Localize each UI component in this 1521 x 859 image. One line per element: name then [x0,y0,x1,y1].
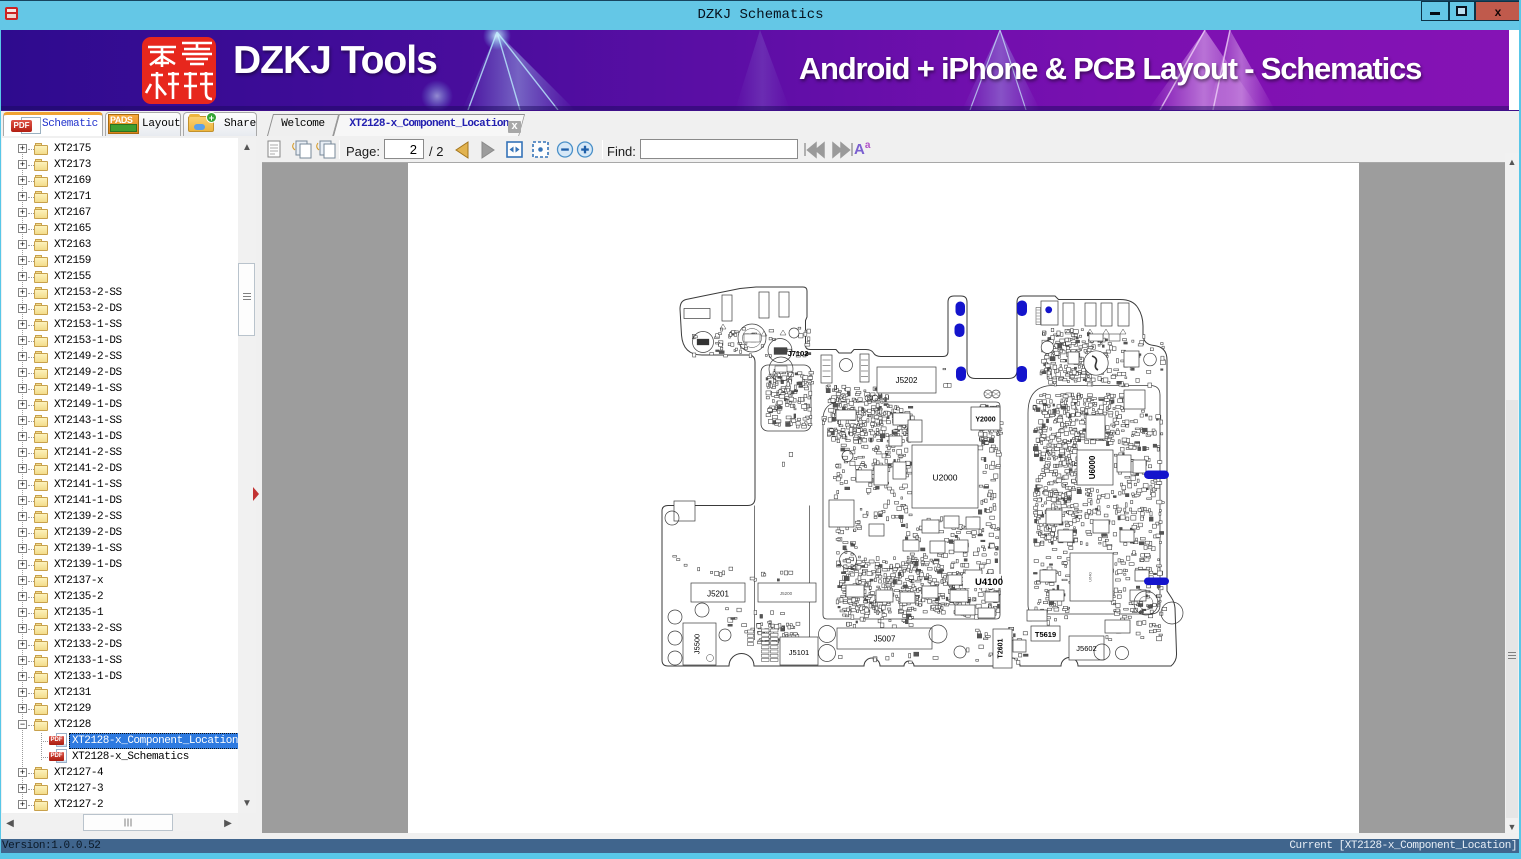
svg-text:T5619: T5619 [1035,630,1056,639]
svg-text:T2601: T2601 [998,638,1005,658]
svg-text:J5101: J5101 [789,648,809,657]
svg-text:J5202: J5202 [896,376,918,385]
svg-text:J7102: J7102 [788,349,809,358]
svg-text:U4100: U4100 [975,577,1003,588]
svg-text:U2000: U2000 [932,473,957,483]
svg-text:J5200: J5200 [780,591,793,596]
svg-text:Y2000: Y2000 [975,417,995,424]
svg-text:U6000: U6000 [1088,455,1097,479]
svg-text:U640: U640 [1088,571,1093,581]
svg-text:J5201: J5201 [707,590,729,599]
svg-text:J5602: J5602 [1076,644,1096,653]
svg-text:J5500: J5500 [693,634,702,654]
svg-text:J5007: J5007 [874,635,896,644]
